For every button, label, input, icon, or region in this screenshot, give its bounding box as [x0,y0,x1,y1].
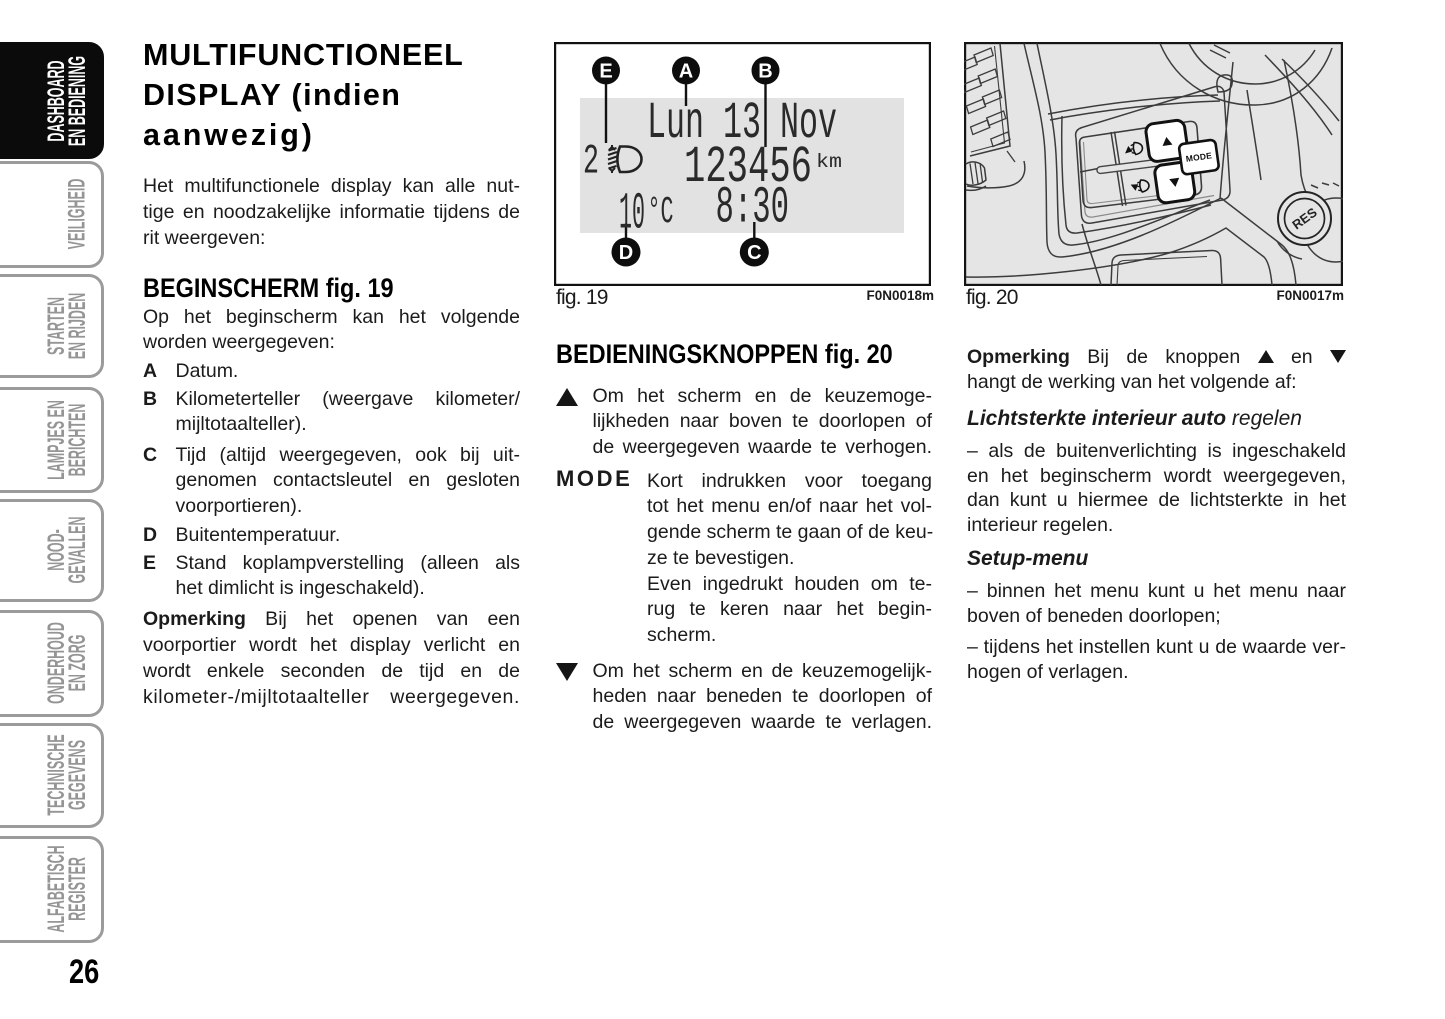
svg-text:A: A [679,61,693,83]
svg-text:2: 2 [583,138,599,186]
svg-text:km: km [816,151,842,173]
svg-text:8:30: 8:30 [716,179,790,238]
svg-text:C: C [747,242,761,264]
svg-text:E: E [599,61,612,83]
svg-text:°C: °C [648,191,674,234]
svg-text:D: D [619,242,633,264]
svg-text:10: 10 [619,185,645,244]
svg-text:B: B [758,61,772,83]
